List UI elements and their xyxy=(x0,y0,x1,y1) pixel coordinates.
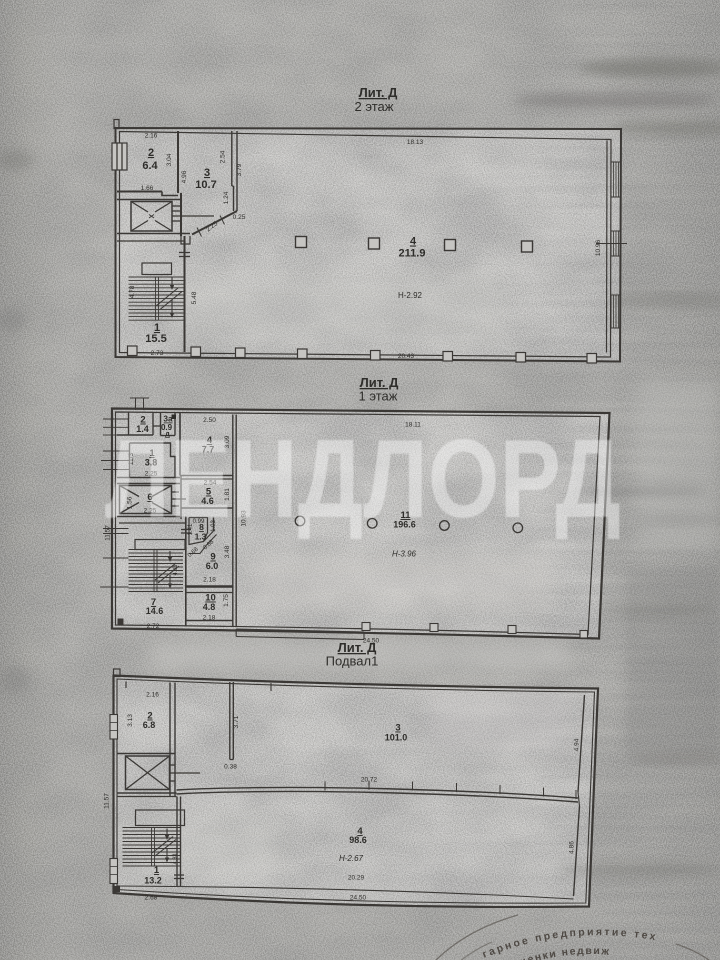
svg-text:4.86: 4.86 xyxy=(569,841,576,854)
svg-text:5.48: 5.48 xyxy=(191,291,198,304)
svg-text:4.78: 4.78 xyxy=(129,285,136,298)
svg-text:2: 2 xyxy=(148,147,154,159)
svg-text:3.79: 3.79 xyxy=(236,163,243,176)
svg-text:20.29: 20.29 xyxy=(348,875,365,882)
svg-text:2.16: 2.16 xyxy=(145,133,158,140)
svg-text:0.38: 0.38 xyxy=(224,764,237,771)
svg-text:18.13: 18.13 xyxy=(407,139,424,146)
svg-text:2.18: 2.18 xyxy=(203,615,216,622)
svg-text:4.93: 4.93 xyxy=(173,854,179,865)
svg-text:4: 4 xyxy=(410,236,417,248)
svg-text:20.72: 20.72 xyxy=(361,777,378,784)
svg-text:3.71: 3.71 xyxy=(233,715,240,728)
svg-text:211.9: 211.9 xyxy=(399,248,426,260)
svg-text:Н-2.92: Н-2.92 xyxy=(398,291,423,300)
svg-text:Н-2.67: Н-2.67 xyxy=(339,854,364,863)
svg-text:6.8: 6.8 xyxy=(143,720,156,730)
svg-text:4.96: 4.96 xyxy=(181,170,188,183)
svg-text:1.75: 1.75 xyxy=(223,594,230,607)
svg-text:Лит. Д: Лит. Д xyxy=(359,85,399,100)
svg-text:6.0: 6.0 xyxy=(206,561,219,571)
svg-text:1.24: 1.24 xyxy=(223,191,230,204)
svg-text:10.7: 10.7 xyxy=(195,179,216,191)
svg-text:98.6: 98.6 xyxy=(349,835,367,845)
svg-text:14.6: 14.6 xyxy=(146,606,164,616)
svg-text:0.25: 0.25 xyxy=(233,214,246,221)
svg-text:2.54: 2.54 xyxy=(220,150,227,163)
svg-text:2.68: 2.68 xyxy=(145,895,158,902)
svg-text:4.93: 4.93 xyxy=(173,565,179,576)
svg-text:13.2: 13.2 xyxy=(144,876,162,886)
svg-text:1.66: 1.66 xyxy=(141,185,154,192)
svg-text:3.04: 3.04 xyxy=(166,153,173,166)
svg-text:6.4: 6.4 xyxy=(142,160,158,172)
svg-text:15.5: 15.5 xyxy=(145,333,166,345)
svg-text:20.43: 20.43 xyxy=(398,353,415,360)
svg-text:1: 1 xyxy=(154,865,160,876)
svg-text:Подвал1: Подвал1 xyxy=(326,654,379,669)
svg-text:Н-3.96: Н-3.96 xyxy=(392,550,417,559)
svg-text:ЛЕНДЛОРД: ЛЕНДЛОРД xyxy=(105,417,621,541)
svg-text:3.13: 3.13 xyxy=(127,714,134,727)
svg-text:11.57: 11.57 xyxy=(104,793,111,809)
svg-text:24.50: 24.50 xyxy=(350,895,367,902)
svg-text:2.72: 2.72 xyxy=(147,623,160,630)
svg-text:4.8: 4.8 xyxy=(203,602,216,612)
svg-text:1 этаж: 1 этаж xyxy=(359,389,398,404)
svg-text:3.48: 3.48 xyxy=(224,545,231,558)
svg-text:101.0: 101.0 xyxy=(385,733,408,743)
svg-text:2.18: 2.18 xyxy=(203,577,216,584)
svg-text:2 этаж: 2 этаж xyxy=(355,99,394,114)
svg-text:2.73: 2.73 xyxy=(151,350,164,357)
svg-text:4.94: 4.94 xyxy=(574,738,581,751)
svg-text:2.16: 2.16 xyxy=(146,692,159,699)
svg-text:10.96: 10.96 xyxy=(595,239,602,256)
svg-text:3: 3 xyxy=(204,167,210,179)
